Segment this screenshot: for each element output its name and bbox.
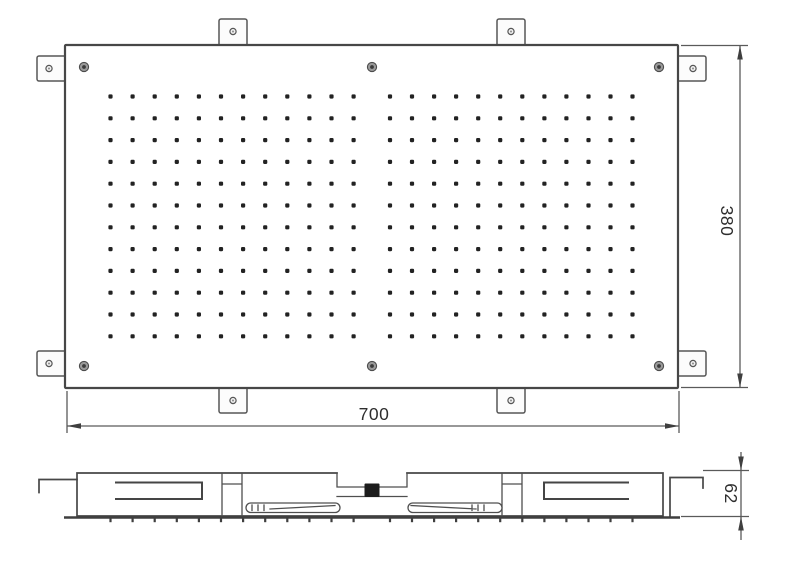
nozzle-dot (307, 334, 311, 338)
nozzle-dot (498, 160, 502, 164)
nozzle-dot (564, 203, 568, 207)
nozzle-dot (329, 247, 333, 251)
nozzle-dot (586, 269, 590, 273)
nozzle-dot (131, 334, 135, 338)
nozzle-dot (586, 225, 590, 229)
screw-top-right (654, 62, 663, 71)
nozzle-dot (542, 182, 546, 186)
nozzle-dot (542, 116, 546, 120)
nozzle-dot (285, 138, 289, 142)
side-nozzle-tick (154, 517, 156, 522)
nozzle-dot (285, 291, 289, 295)
side-nozzle-tick (411, 517, 413, 522)
nozzle-dot (542, 334, 546, 338)
nozzle-dot (241, 182, 245, 186)
nozzle-dot (630, 94, 634, 98)
nozzle-dot (432, 182, 436, 186)
nozzle-dot (352, 138, 356, 142)
nozzle-dot (263, 269, 267, 273)
nozzle-dot (352, 291, 356, 295)
nozzle-dot (219, 334, 223, 338)
nozzle-dot (564, 225, 568, 229)
nozzle-dot (153, 182, 157, 186)
side-nozzle-tick (499, 517, 501, 522)
nozzle-dot (432, 203, 436, 207)
arrow-down-icon (737, 374, 743, 388)
width-dimension-label: 700 (359, 404, 390, 424)
nozzle-dot (263, 225, 267, 229)
nozzle-dot (131, 160, 135, 164)
nozzle-dot (285, 203, 289, 207)
nozzle-dot (388, 94, 392, 98)
nozzle-dot (388, 334, 392, 338)
nozzle-dot (153, 138, 157, 142)
nozzle-dot (329, 334, 333, 338)
nozzle-dot (520, 334, 524, 338)
nozzle-dot (564, 291, 568, 295)
nozzle-dot (410, 182, 414, 186)
nozzle-dot (586, 182, 590, 186)
nozzle-dot (263, 247, 267, 251)
nozzle-dot (241, 203, 245, 207)
nozzle-dot (476, 203, 480, 207)
nozzle-dot (175, 225, 179, 229)
nozzle-dot (241, 225, 245, 229)
nozzle-dot (454, 247, 458, 251)
nozzle-dot (388, 291, 392, 295)
nozzle-dot (131, 94, 135, 98)
nozzle-dot (263, 94, 267, 98)
arrow-down-small-icon (738, 457, 744, 471)
nozzle-dot (498, 138, 502, 142)
nozzle-dot (432, 312, 436, 316)
nozzle-dot (608, 160, 612, 164)
nozzle-dot (175, 312, 179, 316)
nozzle-dot (307, 116, 311, 120)
nozzle-dot (219, 203, 223, 207)
mounting-tab-top-1 (219, 19, 247, 46)
nozzle-dot (520, 94, 524, 98)
nozzle-dot (197, 334, 201, 338)
nozzle-dot (454, 160, 458, 164)
nozzle-dot (476, 247, 480, 251)
nozzle-dot (564, 94, 568, 98)
nozzle-dot (329, 116, 333, 120)
nozzle-dot (307, 312, 311, 316)
mounting-tab-left-top (37, 56, 66, 81)
nozzle-dot (410, 312, 414, 316)
nozzle-dot (586, 160, 590, 164)
nozzle-dot (476, 334, 480, 338)
nozzle-dot (586, 94, 590, 98)
side-nozzle-tick (565, 517, 567, 522)
nozzle-dot (608, 247, 612, 251)
nozzle-dot (307, 160, 311, 164)
nozzle-dot (329, 182, 333, 186)
nozzle-dot (432, 291, 436, 295)
nozzle-dot (630, 116, 634, 120)
nozzle-dot (542, 312, 546, 316)
nozzle-dot (608, 225, 612, 229)
nozzle-dot (285, 94, 289, 98)
nozzle-dot (329, 291, 333, 295)
side-bracket-right (670, 478, 703, 517)
nozzle-dot (241, 94, 245, 98)
nozzle-dot (564, 182, 568, 186)
nozzle-dot (564, 334, 568, 338)
nozzle-dot (197, 182, 201, 186)
nozzle-dot (197, 94, 201, 98)
nozzle-dot (219, 225, 223, 229)
nozzle-dot (410, 116, 414, 120)
nozzle-dot (410, 203, 414, 207)
side-nozzle-tick (330, 517, 332, 522)
nozzle-dot (410, 269, 414, 273)
side-nozzle-tick (176, 517, 178, 522)
nozzle-dot (329, 138, 333, 142)
nozzle-dot (329, 203, 333, 207)
nozzle-dot (352, 312, 356, 316)
nozzle-dot (307, 94, 311, 98)
nozzle-dot (307, 269, 311, 273)
nozzle-dot (175, 203, 179, 207)
nozzle-dot (352, 203, 356, 207)
nozzle-dot (476, 269, 480, 273)
nozzle-dot (520, 138, 524, 142)
nozzle-dot (197, 203, 201, 207)
nozzle-dot (131, 312, 135, 316)
nozzle-dot (564, 160, 568, 164)
nozzle-dot (520, 247, 524, 251)
nozzle-dot (608, 291, 612, 295)
nozzle-dot (241, 334, 245, 338)
nozzle-dot (410, 94, 414, 98)
nozzle-dot (219, 269, 223, 273)
nozzle-dot (498, 247, 502, 251)
nozzle-dot (263, 182, 267, 186)
nozzle-dot (586, 138, 590, 142)
side-nozzle-tick (433, 517, 435, 522)
nozzle-dot (197, 116, 201, 120)
mounting-tab-right-bottom (677, 351, 706, 376)
dimension-width: 700 (67, 391, 679, 433)
nozzle-dot (131, 269, 135, 273)
nozzle-dot (630, 225, 634, 229)
nozzle-dot (108, 247, 112, 251)
nozzle-dot (498, 225, 502, 229)
nozzle-dot (410, 160, 414, 164)
nozzle-dot (241, 269, 245, 273)
side-hook-left (39, 480, 77, 493)
nozzle-dot (630, 312, 634, 316)
nozzle-dot (410, 334, 414, 338)
nozzle-dot (197, 160, 201, 164)
nozzle-dot (388, 247, 392, 251)
arrow-left-icon (67, 423, 81, 429)
nozzle-dot (131, 116, 135, 120)
nozzle-dot (608, 138, 612, 142)
side-nozzle-tick (521, 517, 523, 522)
nozzle-dot (454, 116, 458, 120)
nozzle-dot (542, 138, 546, 142)
nozzle-dot (432, 138, 436, 142)
nozzle-dot (542, 94, 546, 98)
nozzle-dot (197, 225, 201, 229)
nozzle-dot (285, 160, 289, 164)
nozzle-dot (263, 203, 267, 207)
nozzle-dot (454, 182, 458, 186)
nozzle-dot (108, 138, 112, 142)
nozzle-dot (307, 182, 311, 186)
nozzle-dot (285, 247, 289, 251)
nozzle-dot (564, 312, 568, 316)
mounting-tab-bottom-1 (219, 387, 247, 413)
nozzle-dot (498, 94, 502, 98)
side-nozzle-tick (308, 517, 310, 522)
nozzle-dot (241, 312, 245, 316)
nozzle-dot (476, 225, 480, 229)
nozzle-dot (498, 182, 502, 186)
nozzle-dot (586, 116, 590, 120)
nozzle-dot (454, 94, 458, 98)
side-nozzle-tick (477, 517, 479, 522)
nozzle-dot (476, 291, 480, 295)
nozzle-dot (608, 312, 612, 316)
nozzle-dot (175, 160, 179, 164)
side-view (39, 473, 703, 522)
nozzle-dot (476, 94, 480, 98)
side-nozzle-tick (543, 517, 545, 522)
side-nozzle-tick (132, 517, 134, 522)
nozzle-dot (307, 291, 311, 295)
nozzle-dot (542, 269, 546, 273)
mounting-tab-right-top (677, 56, 706, 81)
nozzle-dot (197, 138, 201, 142)
nozzle-dot (329, 269, 333, 273)
nozzle-dot (108, 116, 112, 120)
nozzle-dot (630, 247, 634, 251)
nozzle-dot (263, 291, 267, 295)
nozzle-dot (432, 94, 436, 98)
nozzle-dot (263, 160, 267, 164)
nozzle-dot (175, 291, 179, 295)
nozzle-dot (241, 138, 245, 142)
depth-dimension-label: 62 (721, 483, 741, 503)
nozzle-dot (153, 94, 157, 98)
nozzle-dot (432, 269, 436, 273)
side-nozzle-tick (264, 517, 266, 522)
nozzle-dot (153, 247, 157, 251)
side-nozzle-tick (242, 517, 244, 522)
screw-top-left (79, 62, 88, 71)
nozzle-dot (432, 225, 436, 229)
nozzle-dot (586, 203, 590, 207)
nozzle-dot (476, 116, 480, 120)
nozzle-dot (108, 334, 112, 338)
nozzle-dot (108, 225, 112, 229)
nozzle-dot (432, 247, 436, 251)
technical-drawing-page: 700 380 (0, 0, 800, 572)
nozzle-dot (175, 334, 179, 338)
nozzle-dot (586, 247, 590, 251)
nozzle-dot (153, 225, 157, 229)
nozzle-dot (410, 247, 414, 251)
nozzle-dot (608, 94, 612, 98)
arrow-up-icon (737, 46, 743, 60)
nozzle-dot (131, 225, 135, 229)
nozzle-dot (197, 269, 201, 273)
nozzle-dot (285, 334, 289, 338)
nozzle-dot (219, 312, 223, 316)
nozzle-dot (263, 312, 267, 316)
nozzle-dot (131, 138, 135, 142)
nozzle-dot (153, 116, 157, 120)
nozzle-dot (388, 225, 392, 229)
side-nozzle-tick (455, 517, 457, 522)
arrow-up-small-icon (738, 517, 744, 531)
nozzle-dot (432, 116, 436, 120)
nozzle-dot (498, 269, 502, 273)
nozzle-dot (520, 160, 524, 164)
nozzle-dot (520, 269, 524, 273)
nozzle-dot (564, 247, 568, 251)
spray-slot-right (408, 503, 502, 513)
nozzle-dot (352, 334, 356, 338)
nozzle-dot (352, 94, 356, 98)
nozzle-dot (175, 138, 179, 142)
nozzle-dot (542, 291, 546, 295)
side-nozzle-tick (389, 517, 391, 522)
nozzle-dot (630, 160, 634, 164)
nozzle-dot (498, 312, 502, 316)
nozzle-dot (454, 269, 458, 273)
nozzle-dot (153, 334, 157, 338)
nozzle-dot (241, 291, 245, 295)
nozzle-dot (329, 312, 333, 316)
nozzle-dot (175, 116, 179, 120)
nozzle-dot (108, 269, 112, 273)
screw-bottom-right (654, 361, 663, 370)
nozzle-dot (153, 269, 157, 273)
side-nozzle-tick (631, 517, 633, 522)
nozzle-dot (307, 138, 311, 142)
nozzle-dot (352, 182, 356, 186)
nozzle-dot (608, 334, 612, 338)
nozzle-dot (630, 334, 634, 338)
mounting-tab-bottom-2 (497, 387, 525, 413)
nozzle-dot (153, 312, 157, 316)
nozzle-dot (586, 334, 590, 338)
nozzle-dot (410, 225, 414, 229)
height-dimension-label: 380 (717, 206, 737, 237)
mounting-tab-top-2 (497, 19, 525, 46)
nozzle-dot (197, 312, 201, 316)
nozzle-dot (498, 291, 502, 295)
nozzle-dot (352, 269, 356, 273)
nozzle-dot (219, 116, 223, 120)
side-nozzle-tick (220, 517, 222, 522)
nozzle-dot (108, 94, 112, 98)
nozzle-dot (454, 334, 458, 338)
nozzle-dot (454, 203, 458, 207)
nozzle-dot (520, 116, 524, 120)
nozzle-dot (108, 291, 112, 295)
nozzle-dot (285, 116, 289, 120)
nozzle-dot (352, 116, 356, 120)
side-nozzle-tick (353, 517, 355, 522)
nozzle-dot (263, 138, 267, 142)
nozzle-dot (307, 247, 311, 251)
nozzle-dot (219, 291, 223, 295)
nozzle-dot (586, 291, 590, 295)
nozzle-dot (197, 291, 201, 295)
nozzle-dot (608, 116, 612, 120)
nozzle-dot (219, 247, 223, 251)
nozzle-dot (329, 94, 333, 98)
nozzle-dot (388, 269, 392, 273)
nozzle-dot (542, 203, 546, 207)
nozzle-dot (131, 291, 135, 295)
side-nozzle-tick (109, 517, 111, 522)
nozzle-dot (388, 182, 392, 186)
nozzle-dot (520, 225, 524, 229)
panel-face (65, 45, 678, 388)
nozzle-dot (542, 225, 546, 229)
nozzle-dot (352, 225, 356, 229)
nozzle-dot (153, 203, 157, 207)
nozzle-dot (388, 160, 392, 164)
nozzle-dot (329, 160, 333, 164)
nozzle-dot (219, 160, 223, 164)
nozzle-dot (263, 116, 267, 120)
nozzle-dot (564, 138, 568, 142)
screw-bottom-left (79, 361, 88, 370)
nozzle-dot (498, 116, 502, 120)
nozzle-dot (630, 182, 634, 186)
nozzle-dot (520, 291, 524, 295)
nozzle-dot (197, 247, 201, 251)
nozzle-dot (608, 203, 612, 207)
nozzle-dot (241, 116, 245, 120)
nozzle-dot (542, 160, 546, 164)
nozzle-dot (285, 269, 289, 273)
nozzle-dot (131, 247, 135, 251)
side-nozzle-tick (198, 517, 200, 522)
top-view (37, 19, 706, 413)
nozzle-dot (410, 138, 414, 142)
mounting-tab-left-bottom (37, 351, 66, 376)
nozzle-dot (454, 312, 458, 316)
nozzle-dot (564, 269, 568, 273)
nozzle-dot (432, 160, 436, 164)
nozzle-dot (175, 182, 179, 186)
nozzle-dot (108, 182, 112, 186)
arrow-right-icon (665, 423, 679, 429)
nozzle-dot (285, 312, 289, 316)
nozzle-dot (586, 312, 590, 316)
nozzle-dot (520, 182, 524, 186)
nozzle-dot (454, 225, 458, 229)
nozzle-dot (131, 182, 135, 186)
nozzle-dot (498, 203, 502, 207)
nozzle-dot (131, 203, 135, 207)
nozzle-dot (153, 160, 157, 164)
nozzle-dot (175, 269, 179, 273)
spray-slot-left (246, 503, 340, 513)
side-nozzle-tick (587, 517, 589, 522)
shower-panel-drawing: 700 380 (0, 0, 800, 572)
nozzle-dot (108, 203, 112, 207)
